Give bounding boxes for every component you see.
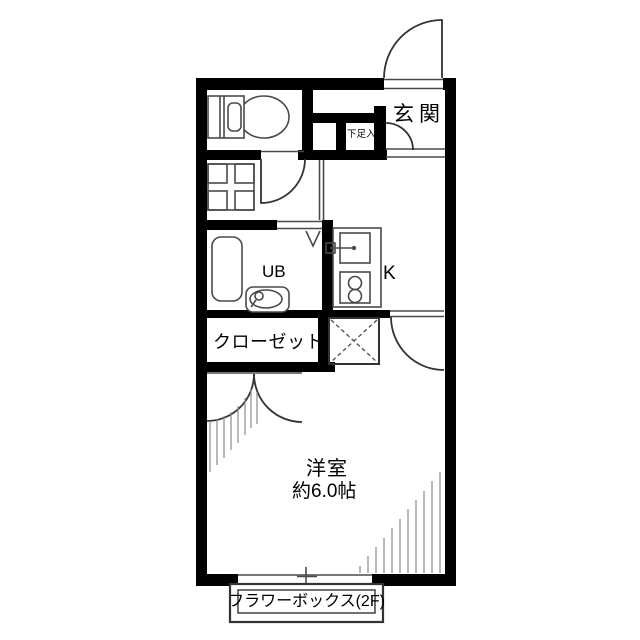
floorplan-canvas: 玄関 下足入 UB K クローゼット 洋室 約6.0帖 フラワーボックス(2F) — [0, 0, 640, 640]
entrance-door-swing — [384, 20, 442, 78]
genkan-step-line — [386, 149, 445, 157]
label-kitchen: K — [383, 264, 396, 283]
room-door-frame — [390, 311, 444, 317]
label-main-room: 洋室 — [306, 459, 348, 479]
unit-bath-door-sill — [277, 222, 322, 229]
partition-lines — [320, 160, 324, 220]
washbasin-icon — [246, 287, 289, 312]
entrance-door-sill — [384, 80, 443, 89]
label-main-room-size: 約6.0帖 — [292, 482, 356, 501]
corner-hatch-lines — [360, 472, 440, 573]
washing-machine-pan-icon — [208, 164, 254, 210]
room-door-swing — [391, 317, 444, 370]
unit-bath-door-mark — [306, 231, 320, 246]
label-flower-box: フラワーボックス(2F) — [238, 590, 375, 613]
closet-hatch-lines — [210, 389, 257, 472]
toilet-icon — [208, 96, 289, 138]
label-unit-bath: UB — [262, 263, 286, 280]
shoe-cabinet-door-swing — [386, 123, 413, 150]
label-closet: クローゼット — [213, 333, 324, 351]
closet-door-swings — [207, 374, 302, 422]
bathtub-icon — [212, 237, 242, 301]
refrigerator-space-icon — [329, 318, 379, 364]
label-shoe-cabinet: 下足入 — [347, 130, 376, 140]
toilet-door-swing — [261, 159, 305, 203]
label-entrance: 玄関 — [393, 104, 445, 125]
floorplan-drawing — [0, 0, 640, 640]
stove-icon — [340, 272, 370, 303]
